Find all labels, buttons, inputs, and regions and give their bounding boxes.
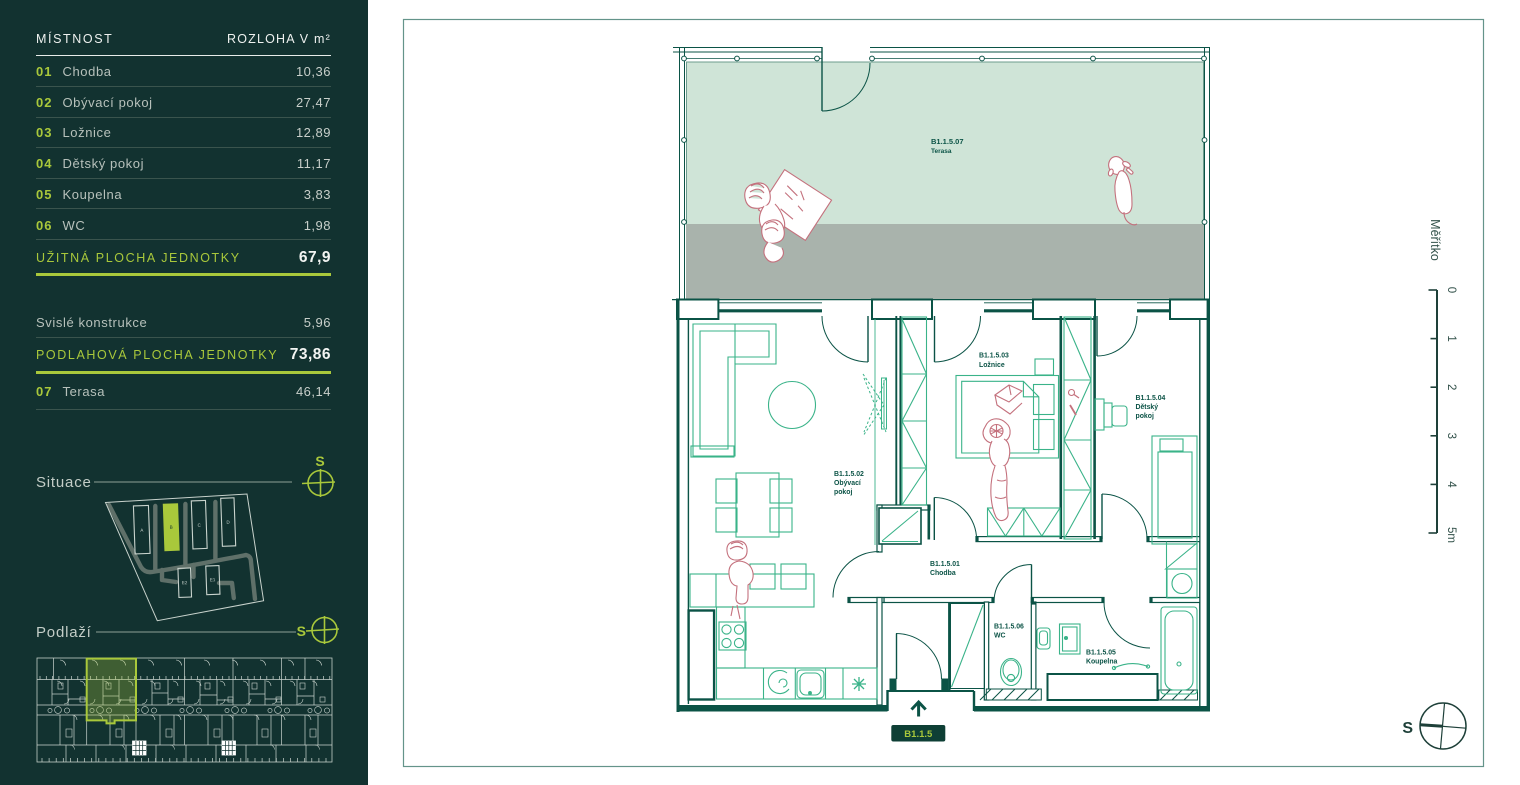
svg-text:Obývací: Obývací	[834, 480, 862, 487]
svg-text:Měřítko: Měřítko	[1428, 219, 1442, 261]
svg-text:B1.1.5.07: B1.1.5.07	[931, 137, 964, 146]
svg-text:WC: WC	[994, 633, 1006, 640]
svg-text:pokoj: pokoj	[834, 489, 852, 496]
svg-text:0: 0	[1445, 287, 1457, 293]
svg-text:B1.1.5.06: B1.1.5.06	[994, 624, 1024, 631]
svg-text:2: 2	[1445, 384, 1457, 390]
svg-text:B1.1.5.01: B1.1.5.01	[930, 561, 960, 568]
svg-text:3: 3	[1445, 433, 1457, 439]
svg-text:B1.1.5: B1.1.5	[904, 729, 933, 740]
svg-text:B1.1.5.02: B1.1.5.02	[834, 471, 864, 478]
svg-text:Ložnice: Ložnice	[979, 362, 1005, 369]
svg-text:B1.1.5.03: B1.1.5.03	[979, 353, 1009, 360]
svg-text:Dětský: Dětský	[1136, 404, 1159, 411]
svg-text:5m: 5m	[1445, 527, 1457, 543]
svg-text:B1.1.5.04: B1.1.5.04	[1136, 395, 1166, 402]
svg-text:1: 1	[1445, 335, 1457, 341]
svg-text:Terasa: Terasa	[931, 148, 952, 155]
svg-text:pokoj: pokoj	[1136, 413, 1154, 420]
svg-text:4: 4	[1445, 481, 1457, 488]
svg-text:B1.1.5.05: B1.1.5.05	[1086, 650, 1116, 657]
svg-text:S: S	[1402, 720, 1413, 737]
svg-text:Koupelna: Koupelna	[1086, 659, 1118, 666]
svg-text:Chodba: Chodba	[930, 570, 956, 577]
